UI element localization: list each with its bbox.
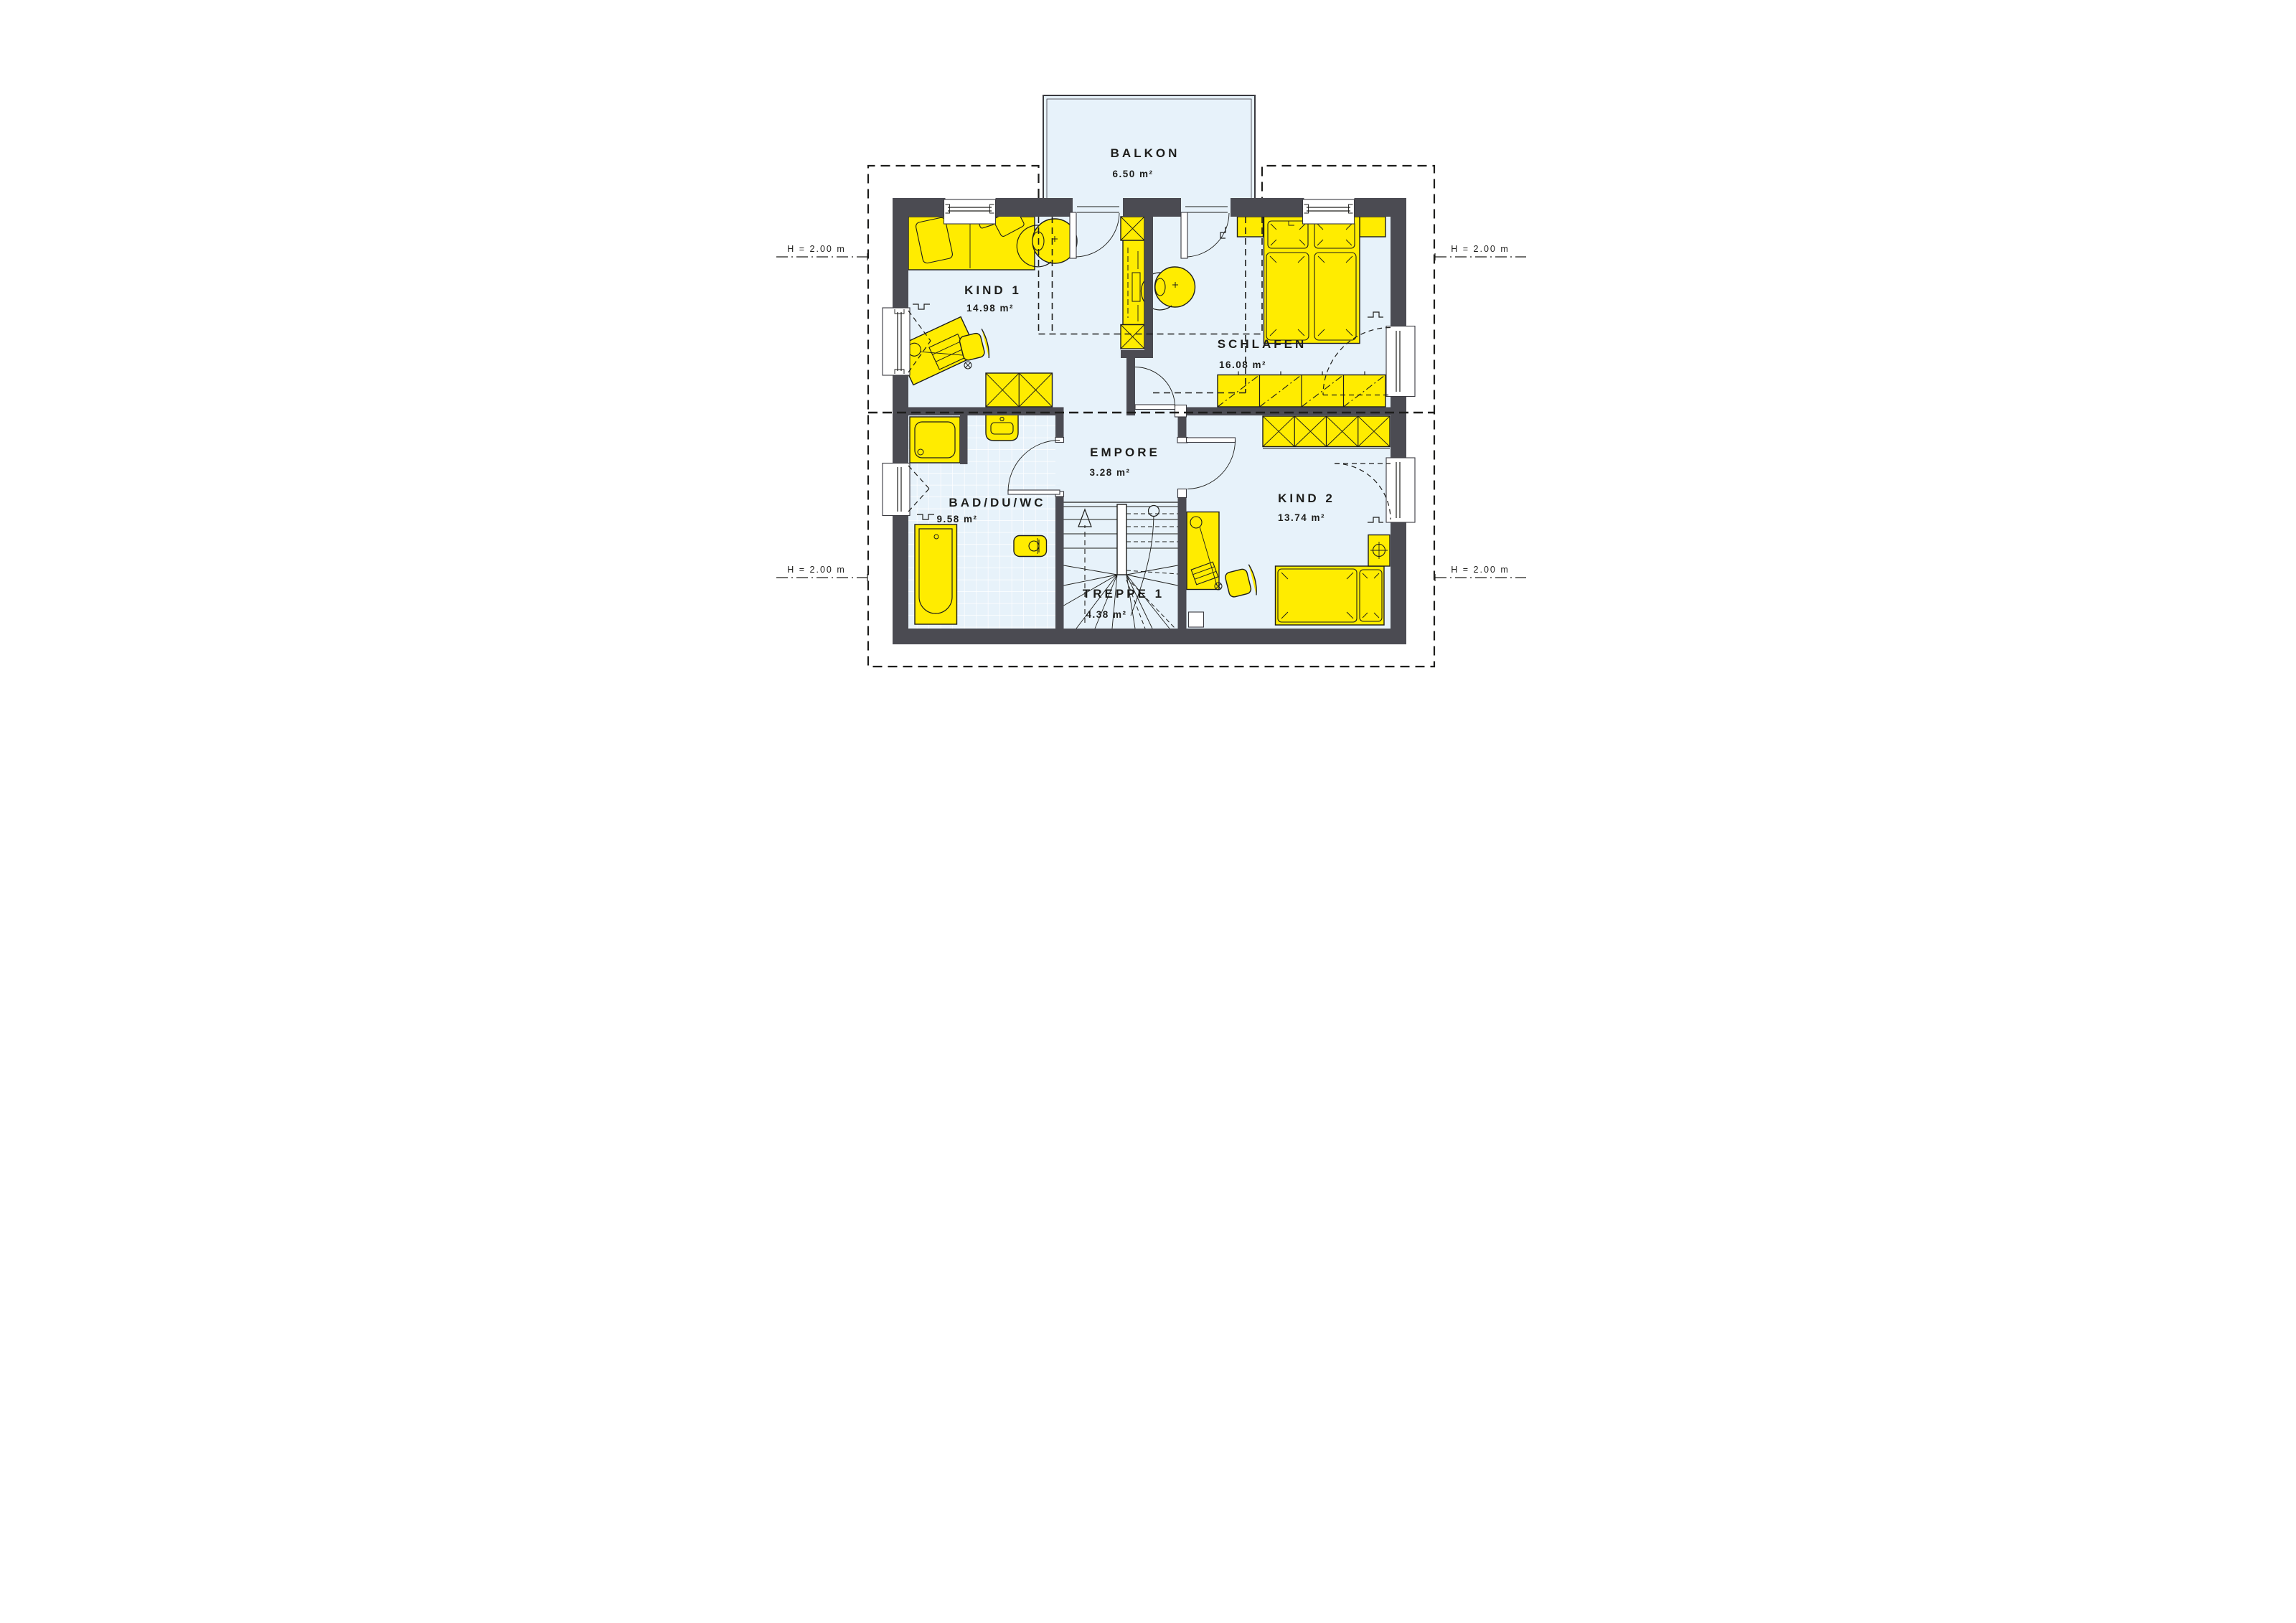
svg-text:H = 2.00 m: H = 2.00 m: [787, 244, 846, 254]
balkon-area: 6.50 m²: [1112, 169, 1153, 179]
bed-single-icon: [1276, 566, 1385, 625]
schlafen-label: SCHLAFEN: [1218, 337, 1307, 351]
floor-plan-drawing: BALKON 6.50 m²: [574, 0, 1722, 812]
height-annotation-bottom-left: H = 2.00 m: [776, 565, 867, 581]
kind1-label: KIND 1: [964, 283, 1022, 297]
kind2-area: 13.74 m²: [1278, 512, 1325, 523]
dresser-icon: [986, 373, 1053, 407]
stool-icon: [1368, 535, 1390, 567]
sink-icon: [986, 414, 1018, 441]
empore-label: EMPORE: [1090, 446, 1160, 459]
desk-icon: [1187, 512, 1222, 591]
stair-stringer: [1117, 504, 1126, 575]
bad-area: 9.58 m²: [936, 514, 977, 524]
wardrobe-icon: [1218, 372, 1385, 409]
treppe-label: TREPPE 1: [1083, 587, 1165, 601]
kind1-area: 14.98 m²: [966, 303, 1014, 314]
height-annotation-top-left: H = 2.00 m: [776, 244, 867, 260]
newel-post: [1149, 506, 1159, 517]
wardrobe-icon: [1263, 416, 1390, 448]
room-balkon: BALKON 6.50 m²: [1043, 95, 1255, 212]
svg-text:H = 2.00 m: H = 2.00 m: [787, 565, 846, 575]
treppe-area: 4.38 m²: [1086, 609, 1126, 620]
hall-shelf-icon: [1121, 217, 1144, 349]
window-kind1-top: [944, 199, 996, 224]
svg-text:H = 2.00 m: H = 2.00 m: [1451, 244, 1510, 254]
window-schlafen-top: [1303, 199, 1355, 224]
floor-plan-canvas: BALKON 6.50 m²: [574, 0, 1722, 812]
nightstand-icon: [1238, 217, 1264, 237]
shower-icon: [910, 417, 960, 463]
bad-label: BAD/DU/WC: [949, 496, 1045, 509]
height-annotation-bottom-right: H = 2.00 m: [1435, 565, 1526, 581]
balkon-label: BALKON: [1111, 146, 1180, 160]
height-annotation-top-right: H = 2.00 m: [1435, 244, 1526, 260]
nightstand-icon: [1360, 217, 1385, 237]
bathtub-icon: [915, 524, 957, 624]
svg-text:H = 2.00 m: H = 2.00 m: [1451, 565, 1510, 575]
kind2-label: KIND 2: [1278, 491, 1335, 505]
toilet-icon: [1014, 536, 1047, 557]
empore-area: 3.28 m²: [1089, 467, 1130, 478]
wall-notch: [1189, 612, 1204, 627]
schlafen-area: 16.08 m²: [1219, 359, 1266, 370]
